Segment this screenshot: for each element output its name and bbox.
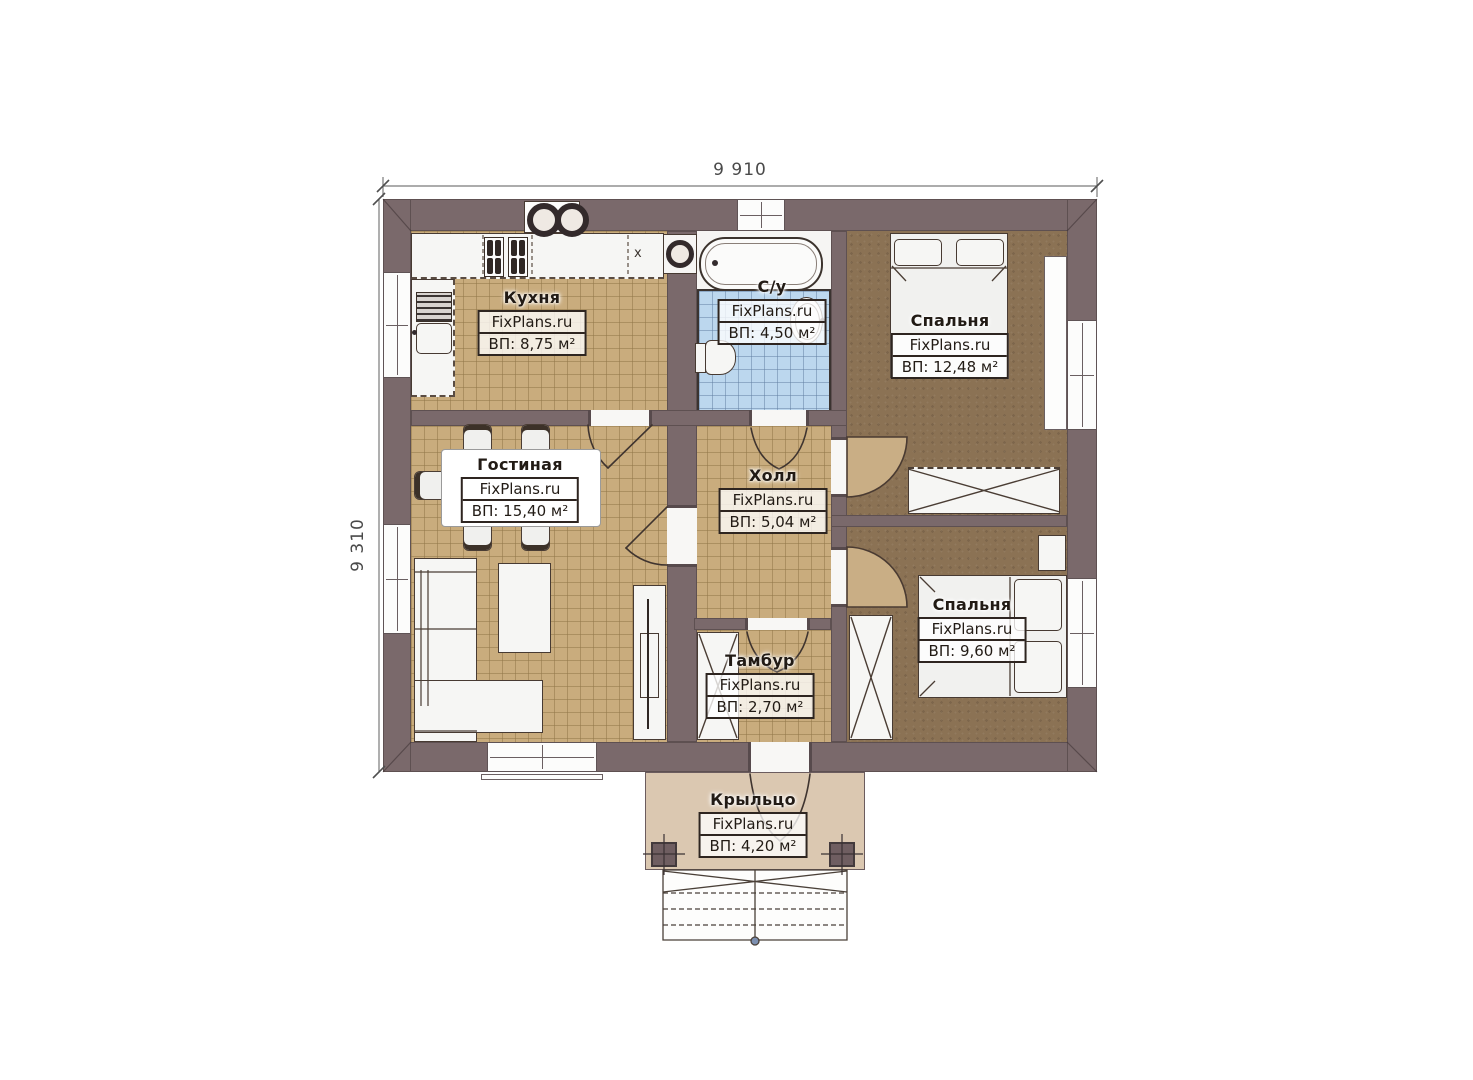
label-box: FixPlans.ru ВП: 4,50 м² [718, 299, 827, 345]
brand-text: FixPlans.ru [480, 312, 585, 334]
dish-rack [416, 292, 452, 322]
brand-text: FixPlans.ru [720, 301, 825, 323]
wall-kitchen-hall-divider [667, 231, 697, 742]
label-box: FixPlans.ru ВП: 15,40 м² [461, 477, 579, 523]
room-name: Кухня [478, 288, 587, 307]
porch-post-right [829, 842, 855, 867]
chimney-flue-right [555, 203, 589, 237]
coffee-table [498, 563, 551, 653]
nightstand [1038, 535, 1066, 571]
room-label-bedroom1: Спальня FixPlans.ru ВП: 12,48 м² [891, 311, 1009, 379]
floor-plan-canvas: x [0, 0, 1473, 1080]
label-box: FixPlans.ru ВП: 4,20 м² [699, 812, 808, 858]
bedroom1-window-shelf [1044, 256, 1067, 430]
window-living-left [383, 524, 411, 634]
toilet-bowl [705, 340, 736, 375]
area-text: ВП: 4,50 м² [720, 323, 825, 343]
window-kitchen-left [383, 272, 411, 378]
room-name: Тамбур [706, 651, 815, 670]
area-text: ВП: 9,60 м² [920, 641, 1025, 661]
window-living-bottom [487, 742, 597, 772]
window-bathroom-top [737, 199, 785, 231]
label-box: FixPlans.ru ВП: 8,75 м² [478, 310, 587, 356]
step-center-marker [751, 937, 759, 945]
kitchen-faucet-dot [412, 330, 417, 335]
wall-bedrooms-divider [831, 515, 1067, 527]
brand-text: FixPlans.ru [463, 479, 577, 501]
room-name: Спальня [918, 595, 1027, 614]
window-sill-outside [481, 774, 603, 780]
area-text: ВП: 4,20 м² [701, 836, 806, 856]
brand-text: FixPlans.ru [721, 490, 826, 512]
stove-burners-left [484, 237, 504, 277]
pillow [894, 239, 942, 266]
porch-steps [663, 870, 847, 945]
room-name: Гостиная [461, 455, 579, 474]
closet-bedroom2 [849, 615, 893, 740]
label-box: FixPlans.ru ВП: 12,48 м² [891, 333, 1009, 379]
brand-text: FixPlans.ru [920, 619, 1025, 641]
area-text: ВП: 2,70 м² [708, 697, 813, 717]
dimension-height-label: 9 310 [348, 505, 368, 585]
dimension-width-label: 9 910 [690, 160, 790, 180]
brand-text: FixPlans.ru [701, 814, 806, 836]
room-label-bathroom: С/у FixPlans.ru ВП: 4,50 м² [718, 277, 827, 345]
wardrobe-bedroom1 [908, 467, 1060, 514]
room-name: С/у [718, 277, 827, 296]
bathtub-faucet [712, 260, 718, 266]
door-opening-bedroom1 [831, 437, 847, 497]
entrance-door-opening [748, 742, 812, 772]
kitchen-counter-top [411, 233, 664, 279]
door-opening-living-hall [667, 505, 697, 567]
room-label-living: Гостиная FixPlans.ru ВП: 15,40 м² [461, 455, 579, 523]
label-box: FixPlans.ru ВП: 9,60 м² [918, 617, 1027, 663]
area-text: ВП: 12,48 м² [893, 357, 1007, 377]
window-bedroom2-right [1067, 578, 1097, 688]
vent-marker: x [634, 246, 642, 261]
label-box: FixPlans.ru ВП: 5,04 м² [719, 488, 828, 534]
room-name: Холл [719, 466, 828, 485]
brand-text: FixPlans.ru [708, 675, 813, 697]
room-label-porch: Крыльцо FixPlans.ru ВП: 4,20 м² [699, 790, 808, 858]
area-text: ВП: 15,40 м² [463, 501, 577, 521]
room-label-bedroom2: Спальня FixPlans.ru ВП: 9,60 м² [918, 595, 1027, 663]
stove-burners-right [508, 237, 528, 277]
room-label-hall: Холл FixPlans.ru ВП: 5,04 м² [719, 466, 828, 534]
label-box: FixPlans.ru ВП: 2,70 м² [706, 673, 815, 719]
door-opening-bedroom2 [831, 547, 847, 607]
door-opening-tambour [745, 618, 810, 630]
area-text: ВП: 5,04 м² [721, 512, 826, 532]
pillow [956, 239, 1004, 266]
area-text: ВП: 8,75 м² [480, 334, 585, 354]
water-heater-circle [666, 240, 694, 268]
window-bedroom1-right [1067, 320, 1097, 430]
porch-post-left [651, 842, 677, 867]
door-opening-kitchen [588, 410, 652, 426]
kitchen-sink [416, 323, 452, 354]
room-name: Крыльцо [699, 790, 808, 809]
room-label-tambour: Тамбур FixPlans.ru ВП: 2,70 м² [706, 651, 815, 719]
room-label-kitchen: Кухня FixPlans.ru ВП: 8,75 м² [478, 288, 587, 356]
brand-text: FixPlans.ru [893, 335, 1007, 357]
sofa-section-chaise [414, 680, 543, 733]
door-opening-bathroom [749, 410, 809, 426]
tv-screen [640, 633, 659, 698]
room-name: Спальня [891, 311, 1009, 330]
